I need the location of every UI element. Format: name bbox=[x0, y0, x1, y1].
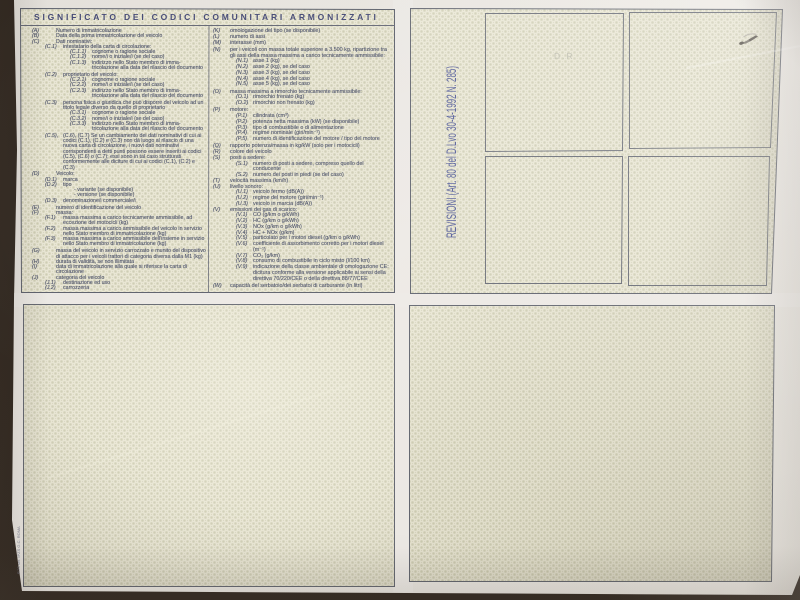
svg-text:P.23 ser. IPZS G.C. ROMA: P.23 ser. IPZS G.C. ROMA bbox=[16, 526, 21, 574]
